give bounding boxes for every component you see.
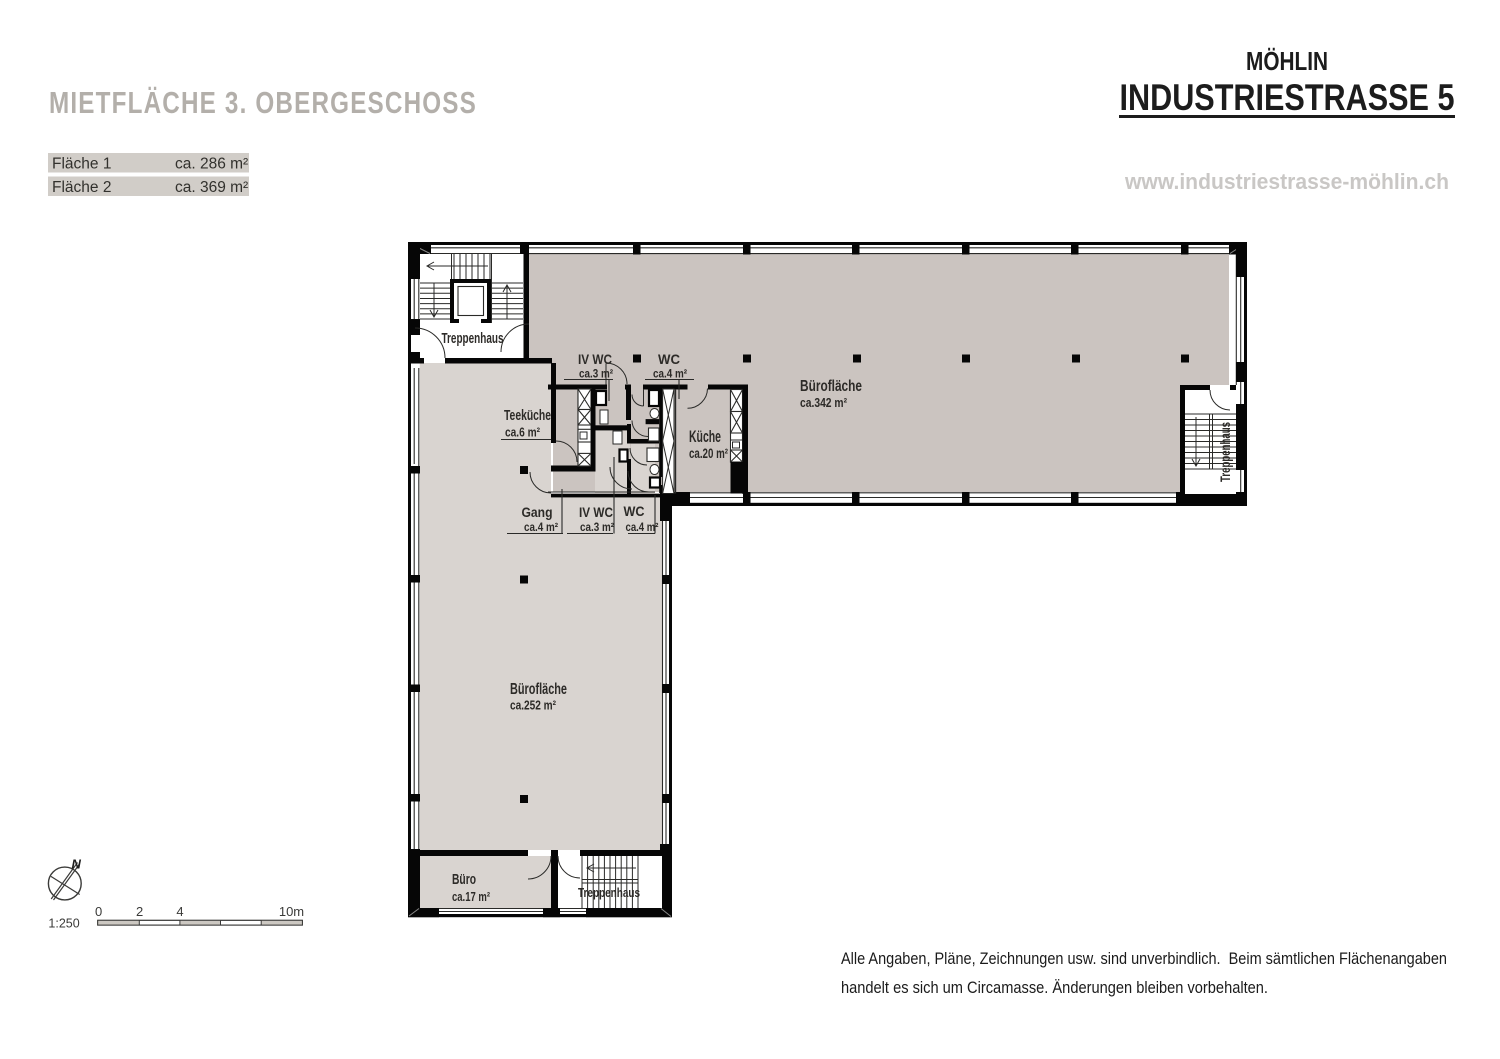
svg-text:Küche: Küche [689,428,721,446]
svg-text:IV WC: IV WC [579,505,613,520]
svg-text:ca.3 m²: ca.3 m² [580,520,614,534]
svg-text:Teeküche: Teeküche [504,407,551,424]
svg-text:www.industriestrasse-möhlin.ch: www.industriestrasse-möhlin.ch [1124,169,1449,194]
svg-text:ca.4 m²: ca.4 m² [524,520,558,534]
svg-text:WC: WC [658,352,680,367]
svg-text:ca. 286 m²: ca. 286 m² [175,156,248,173]
svg-text:ca. 369 m²: ca. 369 m² [175,179,248,196]
svg-text:N: N [72,857,82,872]
svg-text:Gang: Gang [522,505,553,520]
svg-text:MÖHLIN: MÖHLIN [1246,46,1328,76]
svg-text:Bürofläche: Bürofläche [510,681,567,698]
svg-text:ca.3 m²: ca.3 m² [579,367,613,381]
svg-text:Fläche 1: Fläche 1 [52,156,111,173]
svg-text:ca.17 m²: ca.17 m² [452,890,490,904]
svg-text:MIETFLÄCHE 3. OBERGESCHOSS: MIETFLÄCHE 3. OBERGESCHOSS [49,85,477,120]
svg-text:handelt es sich um Circamasse.: handelt es sich um Circamasse. Änderunge… [841,979,1268,997]
svg-text:0: 0 [95,904,102,919]
svg-text:ca.342 m²: ca.342 m² [800,395,848,410]
svg-text:10m: 10m [279,904,304,919]
svg-text:IV WC: IV WC [578,352,612,367]
svg-text:Büro: Büro [452,871,476,888]
svg-text:WC: WC [624,504,645,519]
svg-text:INDUSTRIESTRASSE 5: INDUSTRIESTRASSE 5 [1120,77,1455,118]
svg-text:ca.252 m²: ca.252 m² [510,698,557,713]
svg-text:Treppenhaus: Treppenhaus [442,331,504,347]
svg-text:1:250: 1:250 [48,917,79,931]
svg-text:Treppenhaus: Treppenhaus [1218,422,1233,482]
svg-text:ca.6 m²: ca.6 m² [505,425,541,440]
svg-text:Fläche 2: Fläche 2 [52,179,111,196]
svg-text:Treppenhaus: Treppenhaus [578,886,640,900]
svg-text:Alle Angaben, Pläne, Zeichnung: Alle Angaben, Pläne, Zeichnungen usw. si… [841,950,1447,968]
svg-text:4: 4 [176,904,183,919]
svg-text:ca.20 m²: ca.20 m² [689,446,728,461]
svg-text:2: 2 [136,904,143,919]
svg-text:Bürofläche: Bürofläche [800,378,862,395]
svg-text:ca.4 m²: ca.4 m² [626,520,659,534]
svg-text:ca.4 m²: ca.4 m² [653,367,687,381]
